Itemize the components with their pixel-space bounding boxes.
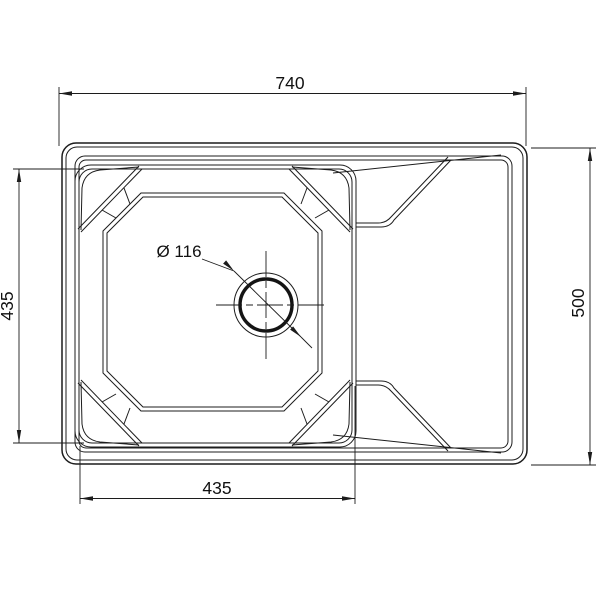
drawing-canvas: Ø 116 740 500 435 435 xyxy=(0,0,600,600)
dim-435l-arrow-bottom xyxy=(17,430,21,443)
sink-outline xyxy=(62,143,527,464)
brace-facet-line-2 xyxy=(102,210,116,218)
bowl-corner-brace-top-right xyxy=(289,166,353,232)
bowl-corner-brace-bottom-left xyxy=(78,380,142,446)
sink-outer-edge xyxy=(62,143,527,464)
dim-435b-arrow-left xyxy=(80,496,93,500)
dimension-500: 500 xyxy=(531,148,596,465)
drain-diameter-tail xyxy=(301,337,312,348)
drainer-bottom-diagonal-2 xyxy=(356,381,451,448)
dim-500-arrow-bottom xyxy=(588,452,592,465)
bowl-floor-outer xyxy=(103,193,322,411)
brace-facet-line xyxy=(301,188,307,204)
brace-corner-pocket xyxy=(81,167,139,230)
flange-crease-top-right xyxy=(333,155,501,173)
drain-arrowhead-lower xyxy=(290,326,301,337)
brace-facet-line xyxy=(124,408,130,424)
dimension-435-left: 435 xyxy=(0,169,84,443)
brace-strip-line-2 xyxy=(289,380,350,443)
brace-facet-line-2 xyxy=(102,394,116,402)
dim-435-bottom-label: 435 xyxy=(202,478,231,498)
dim-740-arrow-right xyxy=(513,91,526,95)
drain-diameter-label: Ø 116 xyxy=(156,242,201,261)
drainer-top-diagonal-2 xyxy=(356,160,451,227)
dim-740-arrow-left xyxy=(59,91,72,95)
dimension-435-bottom: 435 xyxy=(80,386,355,504)
bowl-rim-inner xyxy=(79,169,352,443)
brace-facet-line xyxy=(124,188,130,204)
drainer-area xyxy=(356,157,451,451)
dim-435l-arrow-top xyxy=(17,169,21,182)
bowl-corner-brace-top-left xyxy=(78,166,142,232)
dim-500-arrow-top xyxy=(588,148,592,161)
brace-strip-line-2 xyxy=(289,169,350,232)
dim-435b-arrow-right xyxy=(342,496,355,500)
sink-outer-edge-inner xyxy=(66,147,523,460)
sink-technical-drawing: Ø 116 740 500 435 435 xyxy=(0,0,600,600)
dimension-740: 740 xyxy=(59,73,526,146)
dim-500-label: 500 xyxy=(568,288,588,317)
dim-435-left-label: 435 xyxy=(0,291,17,320)
bowl-floor-inner xyxy=(107,197,318,407)
brace-facet-line-2 xyxy=(315,210,329,218)
bowl xyxy=(75,165,356,447)
brace-facet-line xyxy=(301,408,307,424)
drain: Ø 116 xyxy=(156,242,324,359)
brace-corner-pocket xyxy=(81,382,139,445)
brace-facet-line-2 xyxy=(315,394,329,402)
bowl-rim-outer xyxy=(75,165,356,447)
drainer-top-diagonal xyxy=(356,157,448,223)
drainer-bottom-diagonal xyxy=(356,385,448,451)
brace-corner-pocket xyxy=(292,167,350,230)
dim-740-label: 740 xyxy=(275,73,304,93)
brace-strip-line-2 xyxy=(81,380,142,443)
flange-crease-bottom-right xyxy=(333,435,501,453)
